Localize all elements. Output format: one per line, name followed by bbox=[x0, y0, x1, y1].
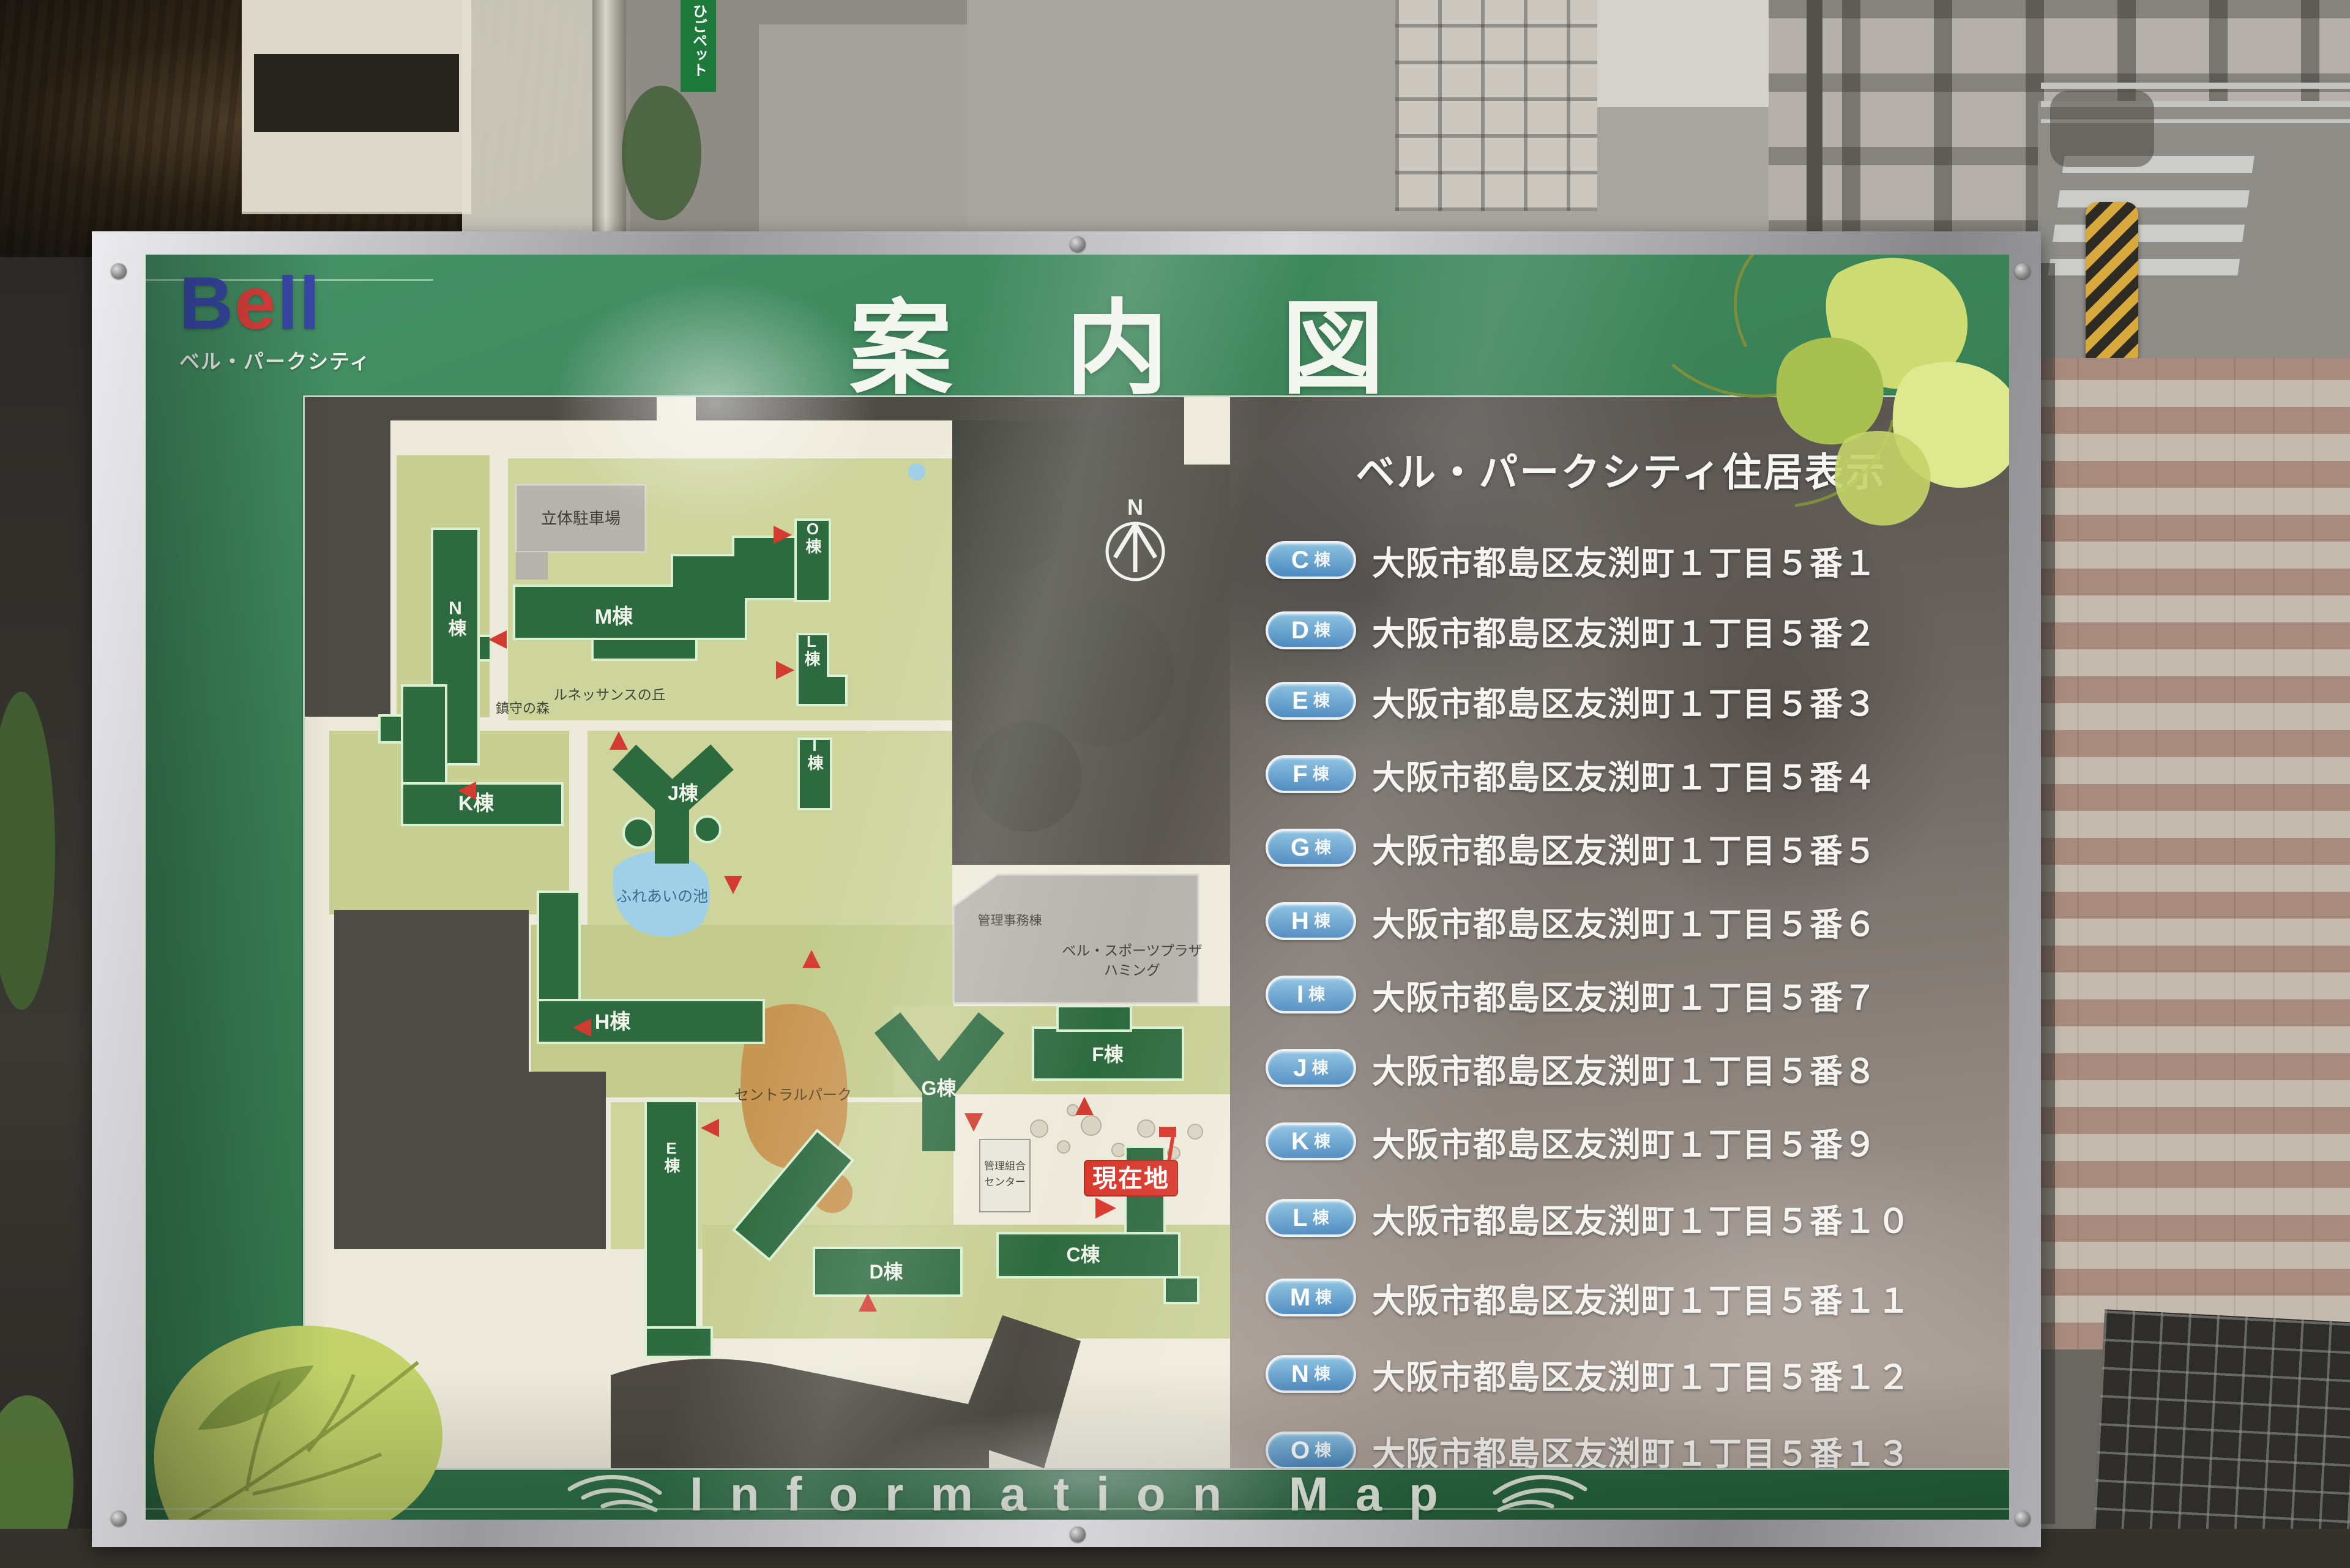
screw-icon bbox=[111, 263, 127, 279]
svg-text:I棟: I棟 bbox=[805, 736, 824, 771]
svg-text:ルネッサンスの丘: ルネッサンスの丘 bbox=[553, 687, 666, 703]
svg-text:D棟: D棟 bbox=[869, 1261, 903, 1283]
svg-text:G棟: G棟 bbox=[922, 1077, 957, 1099]
directory-title: ベル・パークシティ住居表示 bbox=[1230, 441, 2009, 498]
shop-sign: ひごペット bbox=[681, 0, 716, 92]
white-wall bbox=[462, 0, 594, 257]
flourish-left-icon bbox=[559, 1469, 663, 1518]
svg-text:E棟: E棟 bbox=[662, 1139, 681, 1173]
svg-text:M棟: M棟 bbox=[595, 605, 633, 629]
svg-text:セントラルパーク: セントラルパーク bbox=[734, 1087, 852, 1103]
badge-c: C棟 bbox=[1266, 541, 1356, 579]
badge-n: N棟 bbox=[1266, 1355, 1356, 1393]
svg-text:K棟: K棟 bbox=[458, 792, 495, 815]
sign-content-panel: 立体駐車場 管理事務棟 ベル・スポーツプラザ ハミング 管理組合 センター bbox=[303, 395, 2009, 1470]
badge-i: I棟 bbox=[1266, 976, 1356, 1014]
svg-text:現在地: 現在地 bbox=[1092, 1165, 1169, 1192]
sign-green-face: Bell ベル・パークシティ 案内図 bbox=[146, 255, 2009, 1520]
logo-letter-e: e bbox=[234, 261, 277, 345]
svg-text:立体駐車場: 立体駐車場 bbox=[541, 509, 621, 528]
building-m-tab bbox=[592, 639, 696, 660]
directory-row-j: J棟大阪市都島区友渕町１丁目５番８ bbox=[1266, 1048, 1877, 1088]
union-center-building: 管理組合 センター bbox=[980, 1140, 1030, 1212]
badge-h: H棟 bbox=[1266, 902, 1356, 940]
badge-d: D棟 bbox=[1266, 611, 1356, 649]
svg-text:F棟: F棟 bbox=[1092, 1043, 1124, 1066]
directory-row-l: L棟大阪市都島区友渕町１丁目５番１０ bbox=[1266, 1198, 1911, 1238]
badge-k: K棟 bbox=[1266, 1122, 1356, 1160]
directory-row-n: N棟大阪市都島区友渕町１丁目５番１２ bbox=[1266, 1354, 1911, 1394]
screw-icon bbox=[1070, 1526, 1086, 1542]
svg-text:ベル・スポーツプラザ: ベル・スポーツプラザ bbox=[1062, 943, 1203, 958]
footer-highlight-line bbox=[146, 1508, 2009, 1510]
site-map-svg: 立体駐車場 管理事務棟 ベル・スポーツプラザ ハミング 管理組合 センター bbox=[305, 397, 1230, 1468]
site-map: 立体駐車場 管理事務棟 ベル・スポーツプラザ ハミング 管理組合 センター bbox=[305, 397, 1230, 1468]
information-signboard: Bell ベル・パークシティ 案内図 bbox=[92, 231, 2041, 1547]
svg-text:ハミング: ハミング bbox=[1104, 962, 1160, 978]
bell-logo: Bell ベル・パークシティ bbox=[179, 262, 473, 390]
sports-plaza-building: 管理事務棟 ベル・スポーツプラザ ハミング bbox=[953, 875, 1203, 1003]
badge-f: F棟 bbox=[1266, 755, 1356, 793]
svg-text:ふれあいの池: ふれあいの池 bbox=[616, 888, 708, 905]
screw-icon bbox=[1070, 236, 1086, 252]
crosswalk bbox=[2048, 156, 2254, 275]
svg-text:管理事務棟: 管理事務棟 bbox=[978, 914, 1042, 928]
sign-title: 案内図 bbox=[849, 266, 1498, 414]
foliage bbox=[622, 86, 701, 220]
window-grid-building bbox=[1395, 0, 1597, 211]
svg-text:N: N bbox=[1127, 495, 1143, 520]
svg-text:O棟: O棟 bbox=[804, 520, 822, 554]
parked-bicycles bbox=[2050, 91, 2154, 167]
small-pond bbox=[908, 463, 925, 480]
logo-letters-ll: ll bbox=[277, 261, 321, 345]
logo-letter-b: B bbox=[179, 261, 234, 345]
badge-l: L棟 bbox=[1266, 1199, 1356, 1237]
svg-text:センター: センター bbox=[984, 1176, 1026, 1188]
svg-text:鎮守の森: 鎮守の森 bbox=[496, 701, 550, 716]
screw-icon bbox=[2015, 1510, 2031, 1526]
sidewalk-pavers bbox=[2038, 358, 2350, 1350]
directory-row-e: E棟大阪市都島区友渕町１丁目５番３ bbox=[1266, 681, 1877, 720]
svg-text:C棟: C棟 bbox=[1066, 1244, 1100, 1266]
building-window-band bbox=[254, 54, 459, 132]
footer-text: Information Map bbox=[690, 1466, 1465, 1520]
footer-band: Information Map bbox=[146, 1468, 2009, 1520]
background-building-2 bbox=[759, 24, 967, 257]
shop-sign-text: ひごペット bbox=[688, 4, 709, 77]
directory-row-f: F棟大阪市都島区友渕町１丁目５番４ bbox=[1266, 755, 1877, 794]
badge-m: M棟 bbox=[1266, 1279, 1356, 1316]
directory-row-o: O棟大阪市都島区友渕町１丁目５番１３ bbox=[1266, 1431, 1911, 1468]
sky bbox=[1585, 0, 1769, 107]
directory-row-g: G棟大阪市都島区友渕町１丁目５番５ bbox=[1266, 828, 1877, 867]
bell-logo-subtitle: ベル・パークシティ bbox=[179, 345, 473, 375]
badge-g: G棟 bbox=[1266, 829, 1356, 867]
badge-j: J棟 bbox=[1266, 1049, 1356, 1087]
directory-row-m: M棟大阪市都島区友渕町１丁目５番１１ bbox=[1266, 1278, 1911, 1317]
directory-row-k: K棟大阪市都島区友渕町１丁目５番９ bbox=[1266, 1122, 1877, 1161]
striped-bollard bbox=[2086, 202, 2138, 379]
screw-icon bbox=[111, 1510, 127, 1526]
badge-o: O棟 bbox=[1266, 1432, 1356, 1468]
directory-row-i: I棟大阪市都島区友渕町１丁目５番７ bbox=[1266, 975, 1877, 1014]
svg-text:H棟: H棟 bbox=[595, 1010, 632, 1034]
svg-text:J棟: J棟 bbox=[668, 782, 699, 804]
flourish-right-icon bbox=[1492, 1469, 1596, 1518]
directory-row-d: D棟大阪市都島区友渕町１丁目５番２ bbox=[1266, 611, 1877, 650]
svg-text:L棟: L棟 bbox=[802, 632, 821, 666]
address-directory-panel: ベル・パークシティ住居表示 C棟大阪市都島区友渕町１丁目５番１ D棟大阪市都島区… bbox=[1230, 397, 2009, 1468]
bell-logo-word: Bell bbox=[179, 262, 473, 344]
badge-e: E棟 bbox=[1266, 682, 1356, 720]
directory-row-c: C棟大阪市都島区友渕町１丁目５番１ bbox=[1266, 540, 1877, 580]
svg-text:N棟: N棟 bbox=[446, 599, 467, 637]
svg-text:管理組合: 管理組合 bbox=[984, 1160, 1026, 1172]
screw-icon bbox=[2015, 263, 2031, 279]
directory-row-h: H棟大阪市都島区友渕町１丁目５番６ bbox=[1266, 902, 1877, 941]
photo-of-information-sign: ひごペット Bell ベル・パークシティ 案内図 bbox=[0, 0, 2350, 1568]
